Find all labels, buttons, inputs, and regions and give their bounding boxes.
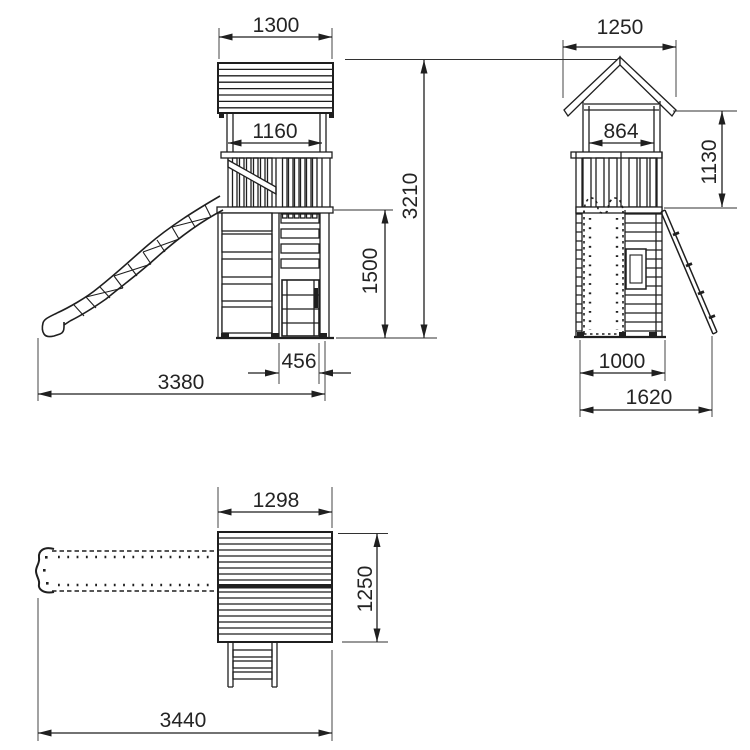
- side-left-plank-ends: [576, 214, 582, 331]
- access-ladder: [661, 210, 717, 334]
- front-roof: [218, 63, 334, 118]
- plan-ladder: [228, 642, 277, 687]
- dim-front-roof-width: 1300: [253, 14, 300, 37]
- plan-dimensions: 1298 1250 3440: [38, 487, 388, 741]
- drawing-canvas: 1300 1160 3210 1500 456 3380: [0, 0, 750, 750]
- dim-tower-depth: 1000: [599, 350, 646, 373]
- front-right-post: [320, 213, 329, 338]
- technical-drawing: 1300 1160 3210 1500 456 3380: [0, 0, 750, 750]
- front-roof-planks: [218, 69, 333, 107]
- dim-ladder-width: 456: [281, 350, 316, 373]
- dim-upper-height: 1130: [698, 139, 721, 184]
- dim-overall-depth: 1620: [626, 386, 673, 409]
- front-view: 1300 1160 3210 1500 456 3380: [38, 14, 619, 401]
- side-view: 1250 864 1130 1000 1620: [563, 16, 737, 417]
- dim-overall-length: 3440: [160, 709, 207, 732]
- side-ground: [574, 332, 666, 337]
- front-door-panel: [282, 280, 319, 336]
- side-platform: [576, 207, 662, 213]
- dim-plan-roof-depth: 1250: [354, 566, 377, 613]
- slide-foot: [42, 313, 70, 337]
- dim-total-height: 3210: [399, 173, 422, 220]
- front-lower-wall: [218, 213, 279, 338]
- slide: [42, 196, 223, 337]
- dim-inner-width: 864: [603, 120, 638, 143]
- dim-front-frame-width: 1160: [252, 120, 297, 143]
- door-handle: [314, 288, 319, 308]
- slide-rear-outline: [584, 198, 623, 334]
- dim-platform-height: 1500: [359, 248, 382, 295]
- dim-side-roof-width: 1250: [597, 16, 644, 39]
- diagonal-brace: [228, 160, 276, 194]
- front-ladder-rungs: [281, 214, 319, 268]
- dim-front-overall-width: 3380: [158, 371, 205, 394]
- plan-view: 1298 1250 3440: [36, 487, 388, 741]
- front-platform: [217, 207, 333, 213]
- side-dimensions: 1250 864 1130 1000 1620: [563, 16, 737, 417]
- dim-plan-roof-width: 1298: [253, 489, 300, 512]
- side-walls: [576, 152, 662, 337]
- plan-roof: [218, 532, 332, 642]
- slide-ticks: [74, 205, 211, 316]
- plan-ridge: [218, 584, 332, 589]
- plan-slide: [36, 548, 218, 592]
